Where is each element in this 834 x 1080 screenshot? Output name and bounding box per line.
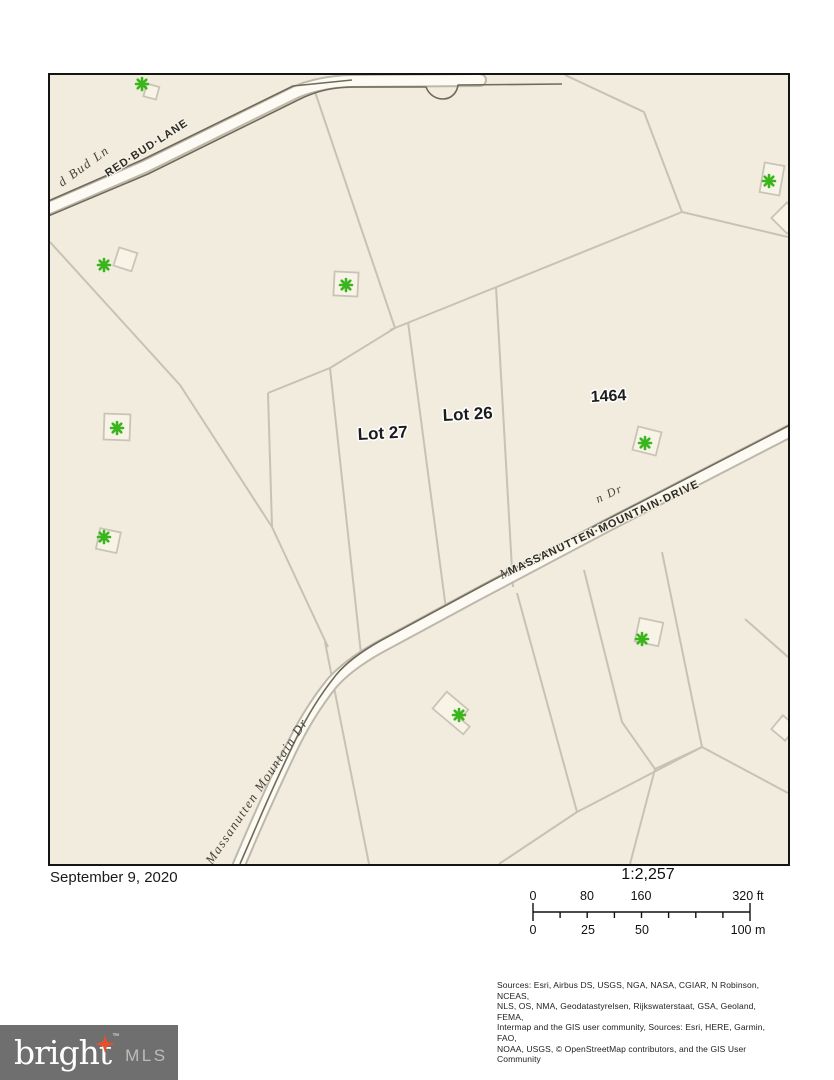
sources-line-1: Sources: Esri, Airbus DS, USGS, NGA, NAS… (497, 980, 775, 1001)
parcel-1464-label: 1464 (590, 387, 627, 406)
scalebar-ft-160: 160 (631, 889, 652, 903)
scale-bar: 0 80 160 320 ft 0 25 50 100 m (520, 888, 780, 938)
asterisk-marker-icon (636, 633, 648, 645)
map-background (50, 75, 788, 864)
map-drawing: d Bud Ln RED·BUD·LANE Massau n Dr MASSAN… (50, 75, 788, 864)
map-date: September 9, 2020 (50, 869, 178, 886)
asterisk-marker-icon (340, 279, 352, 291)
asterisk-marker-icon (111, 422, 123, 434)
bright-mls-logo: bright ™ MLS (0, 1025, 178, 1080)
asterisk-marker-icon (639, 437, 651, 449)
lot-26-label: Lot 26 (442, 403, 493, 425)
sources-line-4: NOAA, USGS, © OpenStreetMap contributors… (497, 1044, 775, 1065)
scalebar-m-0: 0 (530, 923, 537, 937)
logo-suffix-text: MLS (125, 1046, 167, 1066)
asterisk-marker-icon (763, 175, 775, 187)
asterisk-marker-icon (453, 709, 465, 721)
lot-27-label: Lot 27 (357, 422, 408, 444)
scalebar-m-50: 50 (635, 923, 649, 937)
scalebar-m-100: 100 m (731, 923, 766, 937)
sources-attribution: Sources: Esri, Airbus DS, USGS, NGA, NAS… (497, 980, 775, 1065)
sources-line-2: NLS, OS, NMA, Geodatastyrelsen, Rijkswat… (497, 1001, 775, 1022)
asterisk-marker-icon (136, 78, 148, 90)
asterisk-marker-icon (98, 259, 110, 271)
scalebar-ft-80: 80 (580, 889, 594, 903)
scalebar-m-25: 25 (581, 923, 595, 937)
logo-star-icon (94, 1033, 116, 1055)
scale-ratio: 1:2,257 (598, 866, 698, 884)
asterisk-marker-icon (98, 531, 110, 543)
page: { "map": { "background_color": "#f1ecdd"… (0, 0, 834, 1080)
scalebar-ft-0: 0 (530, 889, 537, 903)
sources-line-3: Intermap and the GIS user community, Sou… (497, 1022, 775, 1043)
scalebar-ft-320: 320 ft (732, 889, 764, 903)
plat-map-canvas: d Bud Ln RED·BUD·LANE Massau n Dr MASSAN… (48, 73, 790, 866)
